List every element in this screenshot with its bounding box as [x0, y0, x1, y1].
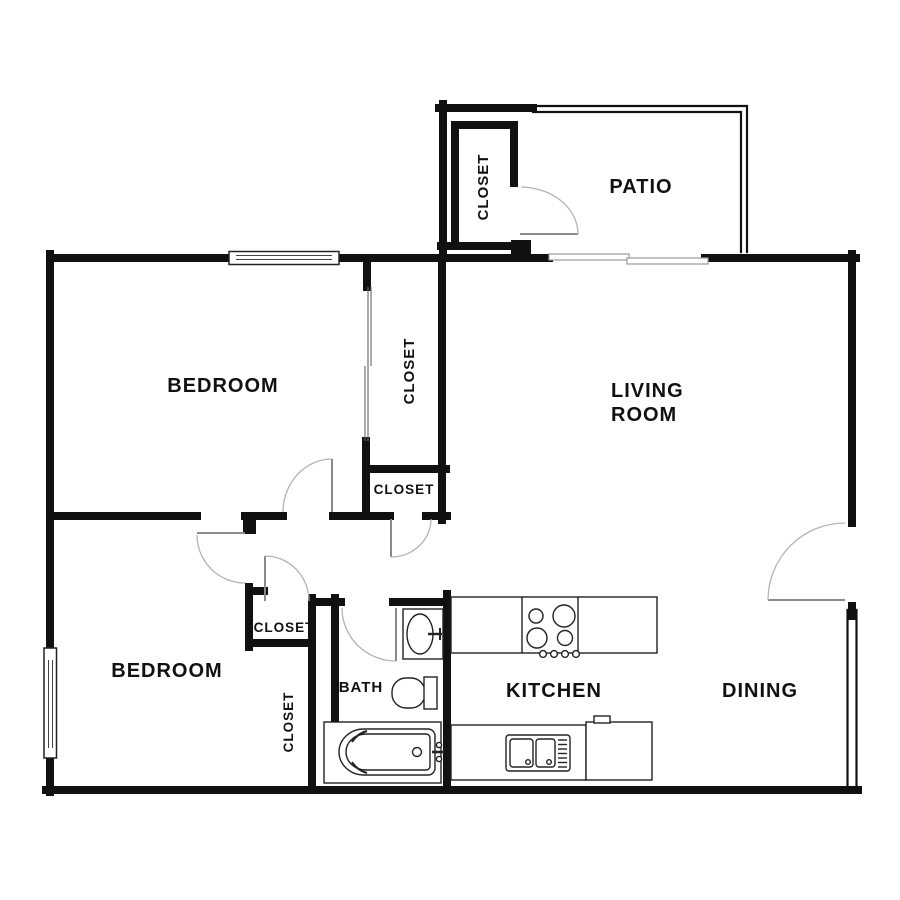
label-dining: DINING: [722, 680, 798, 702]
range-knob: [573, 651, 580, 658]
bedroom1-closet-sliders: [365, 287, 371, 441]
label-kitchen: KITCHEN: [506, 680, 602, 702]
label-closet-bedroom1: CLOSET: [401, 338, 418, 405]
kitchen-island: [586, 716, 652, 780]
exterior-walls: [46, 254, 858, 792]
range-knob: [551, 651, 558, 658]
bedroom2-door: [197, 533, 245, 583]
toilet: [392, 677, 437, 709]
range-knob: [562, 651, 569, 658]
label-closet-bedroom2-tall: CLOSET: [281, 692, 296, 753]
kitchen-sink-counter: [451, 725, 586, 780]
label-bath: BATH: [339, 679, 384, 696]
label-bedroom1: BEDROOM: [167, 375, 278, 397]
label-bedroom2: BEDROOM: [111, 660, 222, 682]
label-closet-bedroom2-small: CLOSET: [254, 620, 315, 635]
entry-door: [768, 523, 845, 600]
bedroom1-window: [229, 252, 339, 265]
hall-closet-door: [391, 519, 431, 557]
label-closet-top: CLOSET: [475, 154, 492, 221]
floor-plan: PATIO CLOSET BEDROOM CLOSET CLOSET LIVIN…: [0, 0, 900, 900]
bath-door: [342, 608, 396, 661]
label-patio: PATIO: [609, 176, 672, 198]
floor-plan-canvas: PATIO CLOSET BEDROOM CLOSET CLOSET LIVIN…: [0, 0, 900, 900]
bath-sink: [403, 609, 443, 659]
sink-drainboard: [558, 740, 567, 767]
label-living-line2: ROOM: [611, 404, 677, 426]
range-knob: [540, 651, 547, 658]
label-living-line1: LIVING: [611, 380, 684, 402]
bedroom2-closet-door: [265, 556, 309, 601]
bedroom1-door: [283, 459, 332, 512]
bathtub: [324, 722, 445, 783]
patio-closet-door: [520, 187, 578, 234]
patio-sliding-door: [549, 254, 708, 264]
label-closet-hall: CLOSET: [374, 482, 435, 497]
bedroom2-window: [44, 648, 57, 758]
kitchen-range-counter: [451, 597, 657, 657]
bath-fixtures: [324, 609, 445, 783]
